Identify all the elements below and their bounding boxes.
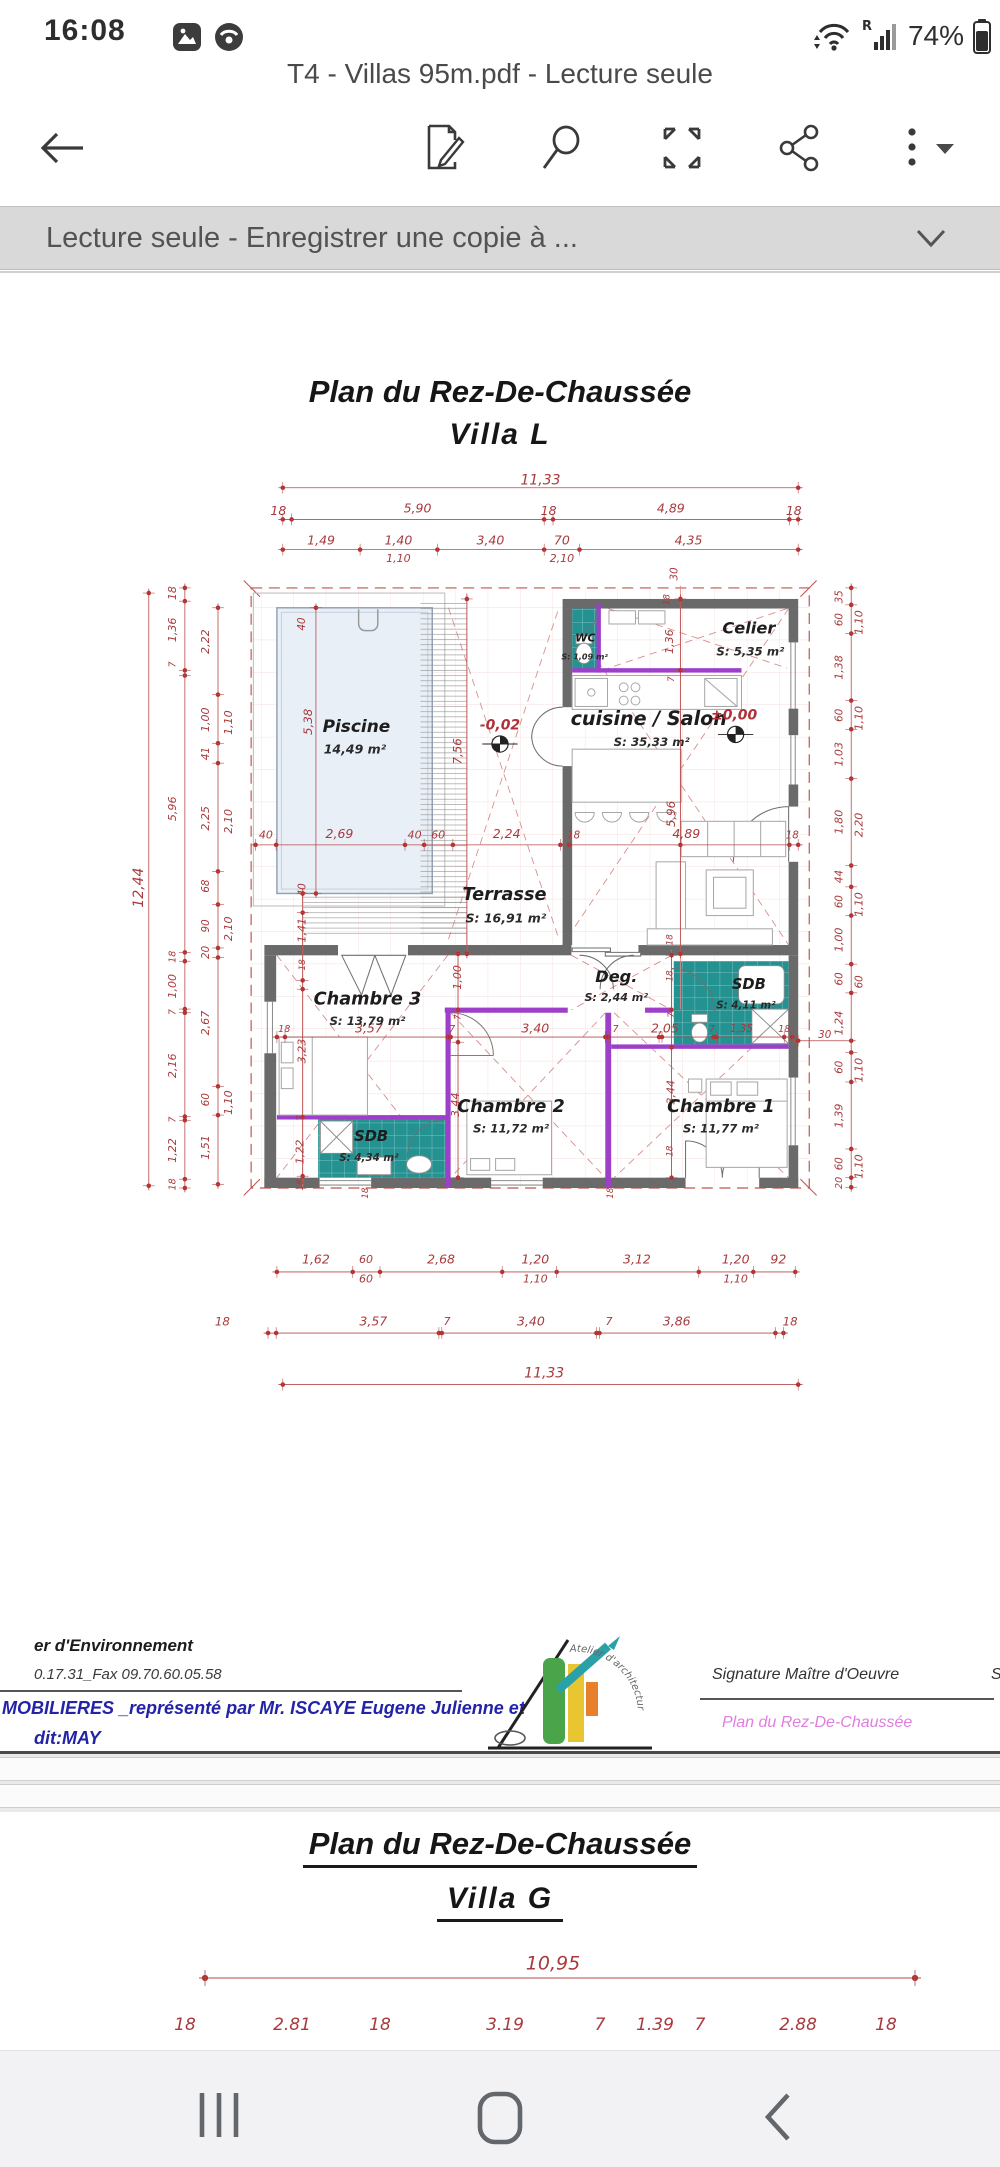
signature-label: Signature Maître d'Oeuvre <box>712 1666 899 1684</box>
dim-label: 18 <box>783 1315 798 1329</box>
dim-label: 1,49 <box>307 532 335 547</box>
dim-label: 60 <box>431 828 445 841</box>
dim-label: 18 <box>168 1178 179 1190</box>
dim-label: 60 <box>359 1272 373 1285</box>
signature-rule <box>700 1698 994 1700</box>
dim-label: 60 <box>833 613 845 627</box>
dim-label: 20 <box>834 1177 845 1189</box>
dim-label: 18 <box>296 1179 306 1191</box>
dim-label: 1,10 <box>222 710 235 735</box>
back-nav-button[interactable] <box>760 2091 796 2143</box>
status-bar: 16:08 R 74% <box>0 0 1000 58</box>
dim-label: 1,10 <box>852 892 865 917</box>
dim-label: 1,51 <box>199 1135 212 1160</box>
dim-label: 7 <box>449 1024 455 1035</box>
dim-label: 3,40 <box>477 532 505 547</box>
readonly-banner-label: Lecture seule - Enregistrer une copie à … <box>46 222 578 255</box>
dim-label: 1,20 <box>722 1252 750 1267</box>
room-name: SDB <box>732 976 766 993</box>
dim-label: 2,68 <box>427 1252 455 1267</box>
pdf-viewer-screen: 16:08 R 74% <box>0 0 1000 2167</box>
dim-label: 90 <box>200 919 212 933</box>
share-button[interactable] <box>772 120 828 176</box>
room-name: Celier <box>722 619 776 638</box>
plan1-subtitle: Villa L <box>0 418 1000 452</box>
dim-label: 2.88 <box>779 2015 817 2035</box>
room-area: S: 5,35 m² <box>716 644 785 658</box>
dim-label: 18 <box>875 2015 897 2035</box>
dim-label: 1,22 <box>166 1138 179 1163</box>
dim-label: 4,89 <box>672 826 700 841</box>
dim-label: 7 <box>667 676 677 682</box>
dim-label: 44 <box>833 870 845 883</box>
dim-label: 2,25 <box>199 806 212 831</box>
dim-label: 1.39 <box>636 2015 674 2035</box>
dim-label: 4,89 <box>657 501 685 516</box>
more-menu-button[interactable] <box>884 120 964 176</box>
edit-button[interactable] <box>414 120 470 176</box>
battery-percent: 74% <box>908 20 964 52</box>
room-area: S: 35,33 m² <box>614 735 691 749</box>
floor-plan-villa-g-dims: 10,95182.81183.1971.3972.8818 <box>0 1900 1000 2050</box>
level-label: ±0,00 <box>711 707 757 723</box>
dim-label: 18 <box>270 503 286 518</box>
dim-label: 2,20 <box>852 813 865 838</box>
dim-label: 7 <box>613 1024 619 1035</box>
dim-label: 2,10 <box>550 552 575 565</box>
dim-label: 1,36 <box>663 629 676 654</box>
dim-label: 18 <box>278 1024 290 1035</box>
clock: 16:08 <box>44 14 126 48</box>
room-area: S: 16,91 m² <box>466 911 547 926</box>
dim-label: 92 <box>770 1252 786 1267</box>
edit-document-icon <box>417 122 467 174</box>
dim-label: 1,10 <box>852 1154 865 1179</box>
level-label: -0,02 <box>480 718 520 734</box>
deck-hatch <box>420 599 466 935</box>
dim-label: 5,38 <box>301 709 315 735</box>
dim-label: 1,10 <box>723 1272 748 1285</box>
dim-label: 2,16 <box>166 1053 179 1078</box>
fullscreen-button[interactable] <box>654 120 710 176</box>
dim-label: 1,00 <box>199 707 212 732</box>
home-button[interactable] <box>476 2091 524 2145</box>
dim-label: 3,40 <box>517 1314 545 1329</box>
share-icon <box>775 122 825 174</box>
dim-label: 3,23 <box>296 1039 309 1064</box>
dim-label: 60 <box>833 708 845 722</box>
dim-label: 18 <box>567 829 581 841</box>
dim-label: 5,96 <box>664 801 678 827</box>
wifi-icon <box>810 18 852 54</box>
dim-label: 5,90 <box>404 501 432 516</box>
dim-label: 5,96 <box>166 797 179 822</box>
floor-plan-villa-l[interactable]: 11,33185,90184,89181,491,403,40704,351,1… <box>0 462 1000 1752</box>
recents-button[interactable] <box>196 2091 242 2139</box>
dim-label: 2.81 <box>273 2015 311 2035</box>
dim-label: 7,56 <box>451 738 465 764</box>
room-area: S: 13,79 m² <box>329 1014 406 1028</box>
dim-label: 10,95 <box>526 1953 580 1975</box>
dim-label: 2,10 <box>222 809 235 834</box>
dim-label: 7 <box>296 1115 306 1121</box>
battery-icon <box>972 18 992 54</box>
architect-logo: Atelier d'architecture <box>470 1630 690 1752</box>
dim-label: 18 <box>666 1145 676 1157</box>
app-notification-icon <box>214 22 244 52</box>
toolbar <box>0 102 1000 194</box>
dim-label: 18 <box>606 1187 616 1199</box>
dim-label: 11,33 <box>524 1366 564 1382</box>
dim-label: 18 <box>786 503 802 518</box>
room-name: Chambre 1 <box>667 1097 775 1117</box>
dim-label: 1,10 <box>386 552 411 565</box>
back-button[interactable] <box>34 120 90 176</box>
dim-label: 7 <box>168 1009 179 1015</box>
signature-plan-name: Plan du Rez-De-Chaussée <box>722 1714 912 1732</box>
dim-label: 2,05 <box>651 1020 679 1035</box>
dim-label: 30 <box>818 1029 832 1041</box>
dim-label: 1,35 <box>730 1023 753 1035</box>
dim-label: 60 <box>833 1157 845 1171</box>
dim-label: 40 <box>259 828 273 841</box>
dim-label: 1,24 <box>832 1011 845 1036</box>
room-name: Chambre 3 <box>314 990 422 1010</box>
dim-label: 3,86 <box>663 1314 691 1329</box>
dim-label: 60 <box>853 975 865 989</box>
dim-label: 1,03 <box>832 742 845 767</box>
fullscreen-icon <box>657 123 707 173</box>
plan2-title: Plan du Rez-De-Chaussée <box>303 1826 697 1868</box>
dim-label: 7 <box>667 1012 677 1018</box>
room-area: S: 11,77 m² <box>683 1122 760 1136</box>
footer-right-cut-text: S <box>991 1666 1000 1684</box>
dim-label: 2,24 <box>493 826 521 841</box>
page-edge <box>0 271 1000 273</box>
dim-label: 40 <box>296 617 308 631</box>
dim-label: 18 <box>174 2015 196 2035</box>
dim-label: 7 <box>695 2015 706 2035</box>
dim-label: 1,80 <box>832 810 845 835</box>
dim-label: 3.19 <box>486 2015 524 2035</box>
dim-label: 1,10 <box>852 706 865 731</box>
back-arrow-icon <box>37 128 87 168</box>
dim-label: 1,62 <box>302 1252 330 1267</box>
dim-label: 18 <box>541 503 557 518</box>
dim-label: 68 <box>200 879 212 893</box>
dim-label: 1,10 <box>852 610 865 635</box>
footer-env-line: er d'Environnement <box>34 1636 193 1656</box>
dim-label: 18 <box>298 959 308 971</box>
dim-label: 3,57 <box>359 1314 387 1329</box>
dim-label: 60 <box>833 895 845 909</box>
page-separator <box>0 1754 1000 1812</box>
dim-label: 7 <box>595 2015 606 2035</box>
search-button[interactable] <box>534 120 590 176</box>
dim-label: 2,22 <box>199 629 212 654</box>
room-area: S: 1,09 m² <box>561 652 608 662</box>
dim-label: 1,10 <box>523 1272 548 1285</box>
overflow-menu-icon <box>884 122 964 174</box>
room-name: WC <box>575 632 595 645</box>
search-icon <box>537 122 587 174</box>
dim-label: 60 <box>359 1253 373 1266</box>
dim-label: 18 <box>361 1187 371 1199</box>
dim-label: 12,44 <box>131 868 147 908</box>
dim-label: 18 <box>168 951 179 963</box>
footer-rule <box>0 1690 462 1692</box>
dim-label: 7 <box>454 1014 464 1020</box>
android-nav-bar <box>0 2050 1000 2167</box>
gallery-notification-icon <box>172 22 202 52</box>
dim-label: 35 <box>833 590 845 603</box>
dim-label: 1,20 <box>521 1252 549 1267</box>
dim-label: 70 <box>554 532 570 547</box>
dropdown-caret-icon <box>936 144 954 154</box>
chevron-down-icon <box>914 227 948 249</box>
room-name: Chambre 2 <box>457 1097 565 1117</box>
deck-hatch-2 <box>303 893 467 935</box>
svg-text:R: R <box>862 19 872 34</box>
dim-label: 41 <box>200 747 212 760</box>
dim-label: 18 <box>666 934 676 946</box>
cellular-signal-icon: R <box>860 18 900 54</box>
dim-label: 4,35 <box>675 532 703 547</box>
dim-label: 3,12 <box>623 1252 651 1267</box>
dim-label: 18 <box>778 1024 790 1035</box>
footer-fax-line: 0.17.31_Fax 09.70.60.05.58 <box>34 1666 222 1683</box>
dim-label: 1,00 <box>166 974 179 999</box>
document-title: T4 - Villas 95m.pdf - Lecture seule <box>0 58 1000 90</box>
plan1-title: Plan du Rez-De-Chaussée <box>0 374 1000 410</box>
dim-label: 18 <box>369 2015 391 2035</box>
room-area: 14,49 m² <box>324 741 387 756</box>
dim-label: 18 <box>786 829 800 841</box>
room-area: S: 11,72 m² <box>473 1122 550 1136</box>
room-name: Deg. <box>595 967 637 986</box>
room-area: S: 4,34 m² <box>339 1152 399 1164</box>
dim-label: 2,67 <box>199 1011 212 1036</box>
room-name: Terrasse <box>462 885 546 905</box>
dim-label: 3,40 <box>521 1020 549 1035</box>
dim-label: 1,40 <box>384 532 412 547</box>
dim-label: 60 <box>833 1060 845 1074</box>
dim-label: 20 <box>200 945 212 959</box>
dim-label: 1,10 <box>852 1058 865 1083</box>
dim-label: 1,39 <box>832 1104 845 1129</box>
dim-label: 40 <box>408 828 422 841</box>
dim-label: 11,33 <box>520 472 560 488</box>
dim-label: 30 <box>669 567 681 581</box>
room-area: S: 4,11 m² <box>716 999 776 1011</box>
room-name: cuisine / Salon <box>571 707 727 730</box>
dim-label: 1,41 <box>296 918 309 943</box>
dim-label: 7 <box>443 1315 450 1328</box>
dim-label: 60 <box>833 972 845 986</box>
dim-label: 1,38 <box>832 655 845 680</box>
dim-label: 18 <box>666 970 676 982</box>
dim-label: 1,36 <box>166 618 179 643</box>
dim-label: 1,00 <box>832 928 845 953</box>
dim-label: 18 <box>215 1315 230 1329</box>
room-name: SDB <box>354 1128 388 1145</box>
dim-label: 7 <box>709 1024 715 1035</box>
dim-label: 40 <box>297 883 309 897</box>
readonly-banner[interactable]: Lecture seule - Enregistrer une copie à … <box>0 206 1000 270</box>
dim-label: 2,10 <box>222 917 235 942</box>
dim-label: 1,22 <box>293 1140 306 1165</box>
dim-label: 18 <box>663 594 673 606</box>
dim-label: 60 <box>200 1093 212 1107</box>
footer-owner-line: MOBILIERES _représenté par Mr. ISCAYE Eu… <box>2 1698 525 1719</box>
dim-label: 1,00 <box>451 965 464 990</box>
footer-dit-line: dit:MAY <box>34 1728 101 1749</box>
dim-label: 7 <box>168 661 179 667</box>
dim-label: 7 <box>168 1116 179 1122</box>
dim-label: 18 <box>166 586 179 600</box>
room-name: Piscine <box>323 716 391 736</box>
dim-label: 2,69 <box>326 826 354 841</box>
dim-label: 7 <box>605 1315 612 1328</box>
dim-label: 1,10 <box>222 1090 235 1115</box>
room-area: S: 2,44 m² <box>585 991 649 1004</box>
